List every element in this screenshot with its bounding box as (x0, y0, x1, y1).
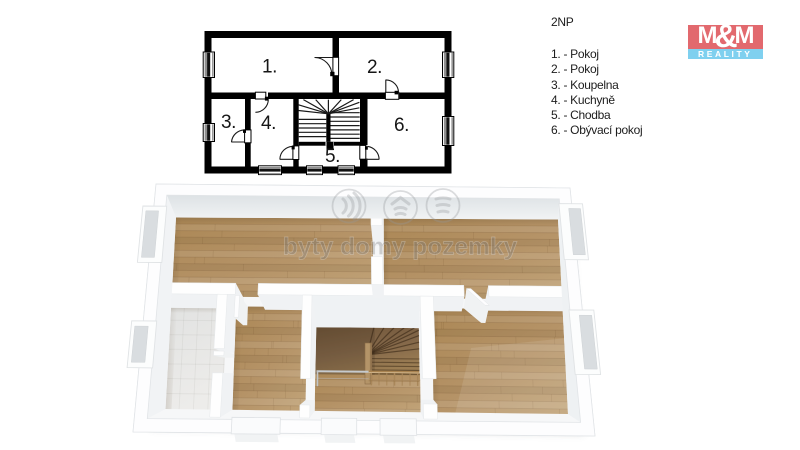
svg-text:byty domy pozemky: byty domy pozemky (283, 234, 518, 261)
